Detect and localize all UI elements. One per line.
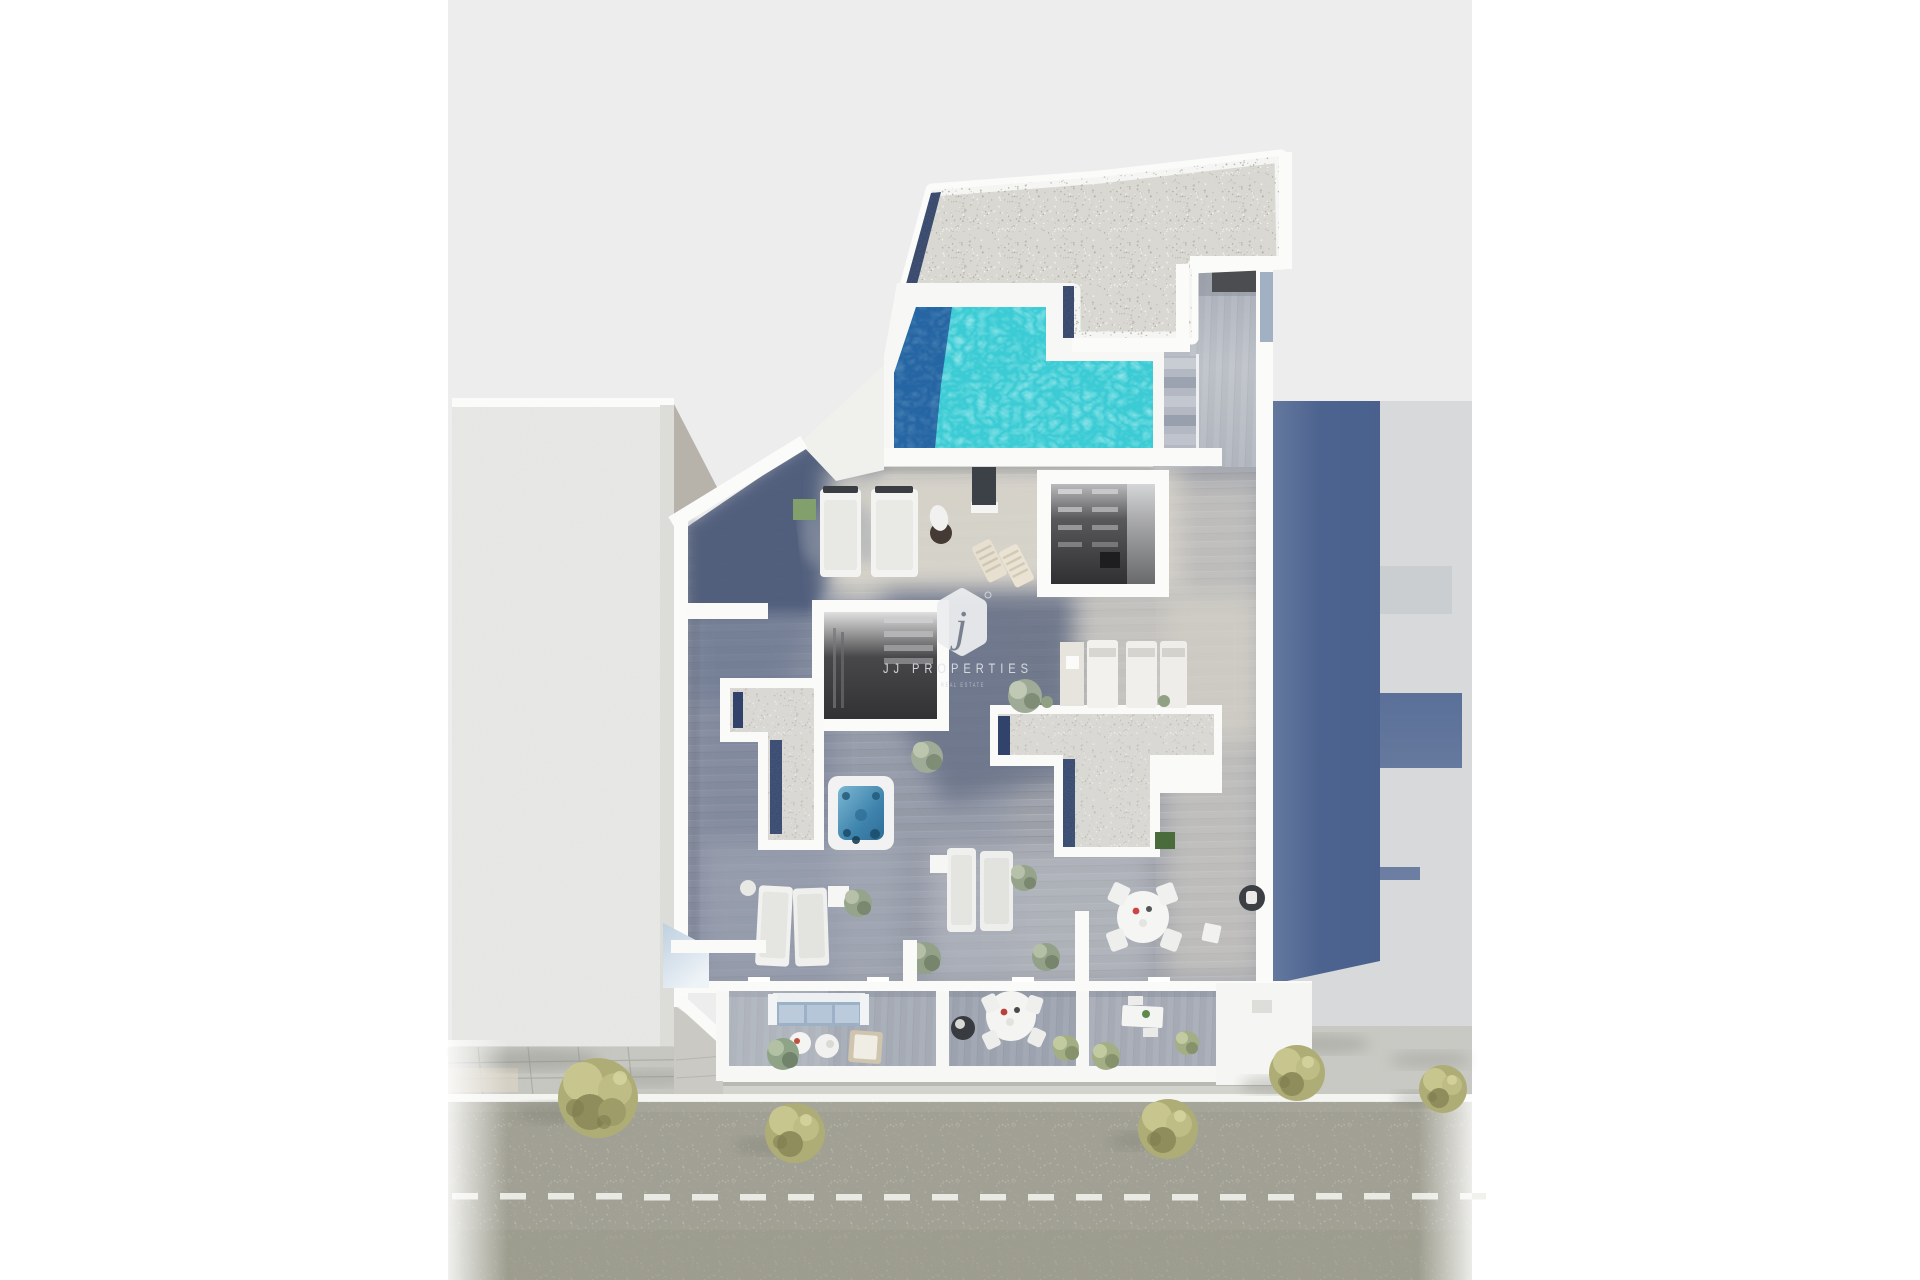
svg-text:JJ PROPERTIES: JJ PROPERTIES [883, 661, 1033, 676]
svg-text:REAL ESTATE: REAL ESTATE [941, 682, 985, 689]
